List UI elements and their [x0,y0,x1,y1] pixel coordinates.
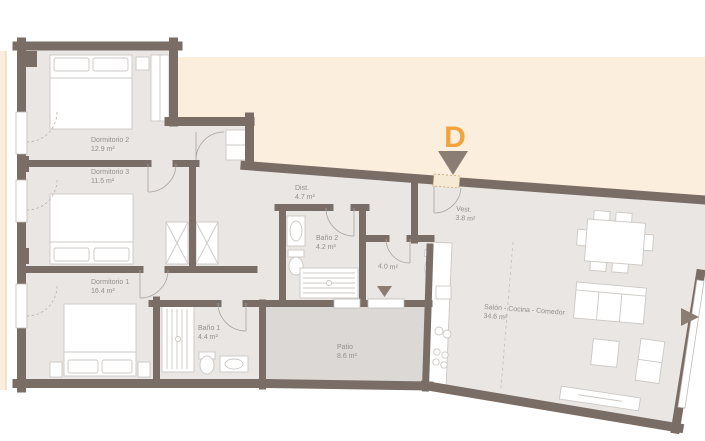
svg-text:16.4 m²: 16.4 m² [91,288,115,295]
surroundings-left-strip [0,51,6,390]
svg-text:11.5 m²: 11.5 m² [91,178,115,185]
svg-text:Patio: Patio [337,344,353,351]
wall-pillar [17,156,29,172]
wardrobe-icon [166,222,188,264]
bed-double-icon [50,304,150,377]
svg-text:4.0 m²: 4.0 m² [378,263,399,271]
wall-pillar [26,51,37,67]
entrance-opening [433,174,460,188]
wardrobe-icon [196,222,218,264]
svg-text:Baño 2: Baño 2 [316,235,338,242]
toilet-icon [199,352,215,374]
svg-text:12.9 m²: 12.9 m² [91,146,115,153]
svg-text:3.8 m²: 3.8 m² [455,215,476,223]
svg-text:4.2 m²: 4.2 m² [316,244,337,251]
wardrobe-icon [151,55,169,121]
svg-text:Dist.: Dist. [295,185,309,192]
svg-text:4.4 m²: 4.4 m² [198,334,219,341]
svg-text:8.6 m²: 8.6 m² [337,353,358,360]
room-label-aseo: 4.0 m² [378,263,399,271]
svg-text:Baño 1: Baño 1 [198,325,220,332]
wall-pillar [17,248,29,264]
floor-plan: Dormitorio 2 12.9 m² Dormitorio 3 11.5 m… [0,0,705,441]
svg-text:Dormitorio 2: Dormitorio 2 [91,137,129,144]
svg-text:Dormitorio 3: Dormitorio 3 [91,169,129,176]
sink-icon [220,356,248,372]
closet-icon [226,130,248,160]
shower-icon [162,306,194,372]
svg-text:4.7 m²: 4.7 m² [295,194,316,201]
sink-icon [287,216,305,246]
svg-text:Dormitorio 1: Dormitorio 1 [91,279,129,286]
sofa-icon [574,282,647,324]
shower-icon [300,268,358,298]
svg-text:D: D [444,121,466,154]
bed-double-icon [50,194,133,264]
floor-plan-canvas: Dormitorio 2 12.9 m² Dormitorio 3 11.5 m… [0,0,705,441]
svg-text:Vest.: Vest. [456,206,472,214]
coffee-table-icon [591,339,620,368]
